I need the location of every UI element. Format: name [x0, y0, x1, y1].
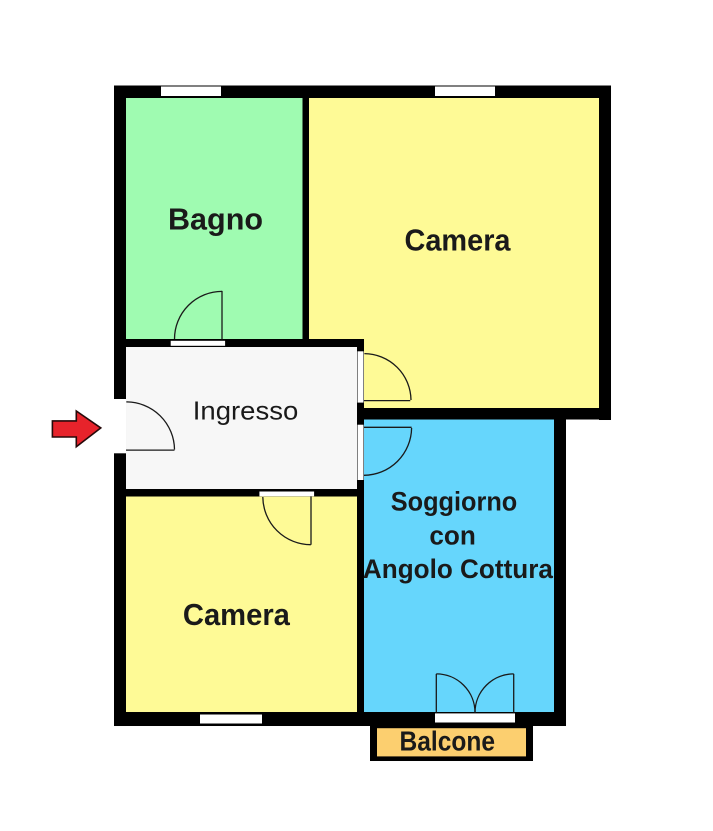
svg-text:con: con	[429, 521, 476, 551]
svg-text:Ingresso: Ingresso	[193, 396, 299, 426]
svg-text:Camera: Camera	[183, 598, 291, 632]
svg-text:Balcone: Balcone	[400, 725, 496, 756]
svg-text:Soggiorno: Soggiorno	[391, 486, 518, 516]
svg-text:Bagno: Bagno	[168, 203, 263, 237]
svg-text:Camera: Camera	[405, 223, 512, 257]
svg-text:Angolo Cottura: Angolo Cottura	[363, 554, 553, 584]
